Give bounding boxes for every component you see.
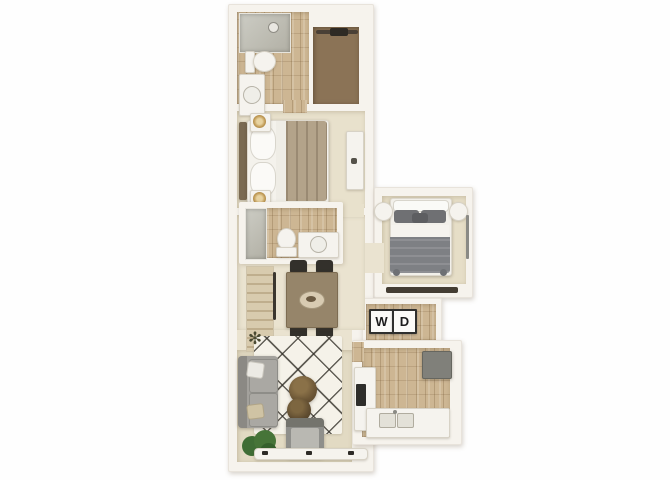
bedroom1-sheet: [276, 121, 286, 201]
closet1-hanging-clothes: [330, 28, 348, 36]
bedroom1-lamp-top: [253, 115, 266, 128]
bathroom2-shower: [245, 208, 267, 260]
bedroom2-duvet-tassel: [393, 269, 400, 276]
doorway-bedroom1: [340, 204, 364, 217]
bathroom1-shower: [239, 13, 291, 53]
bedroom2-nightstand-left: [374, 202, 393, 221]
bathroom2-toilet-tank: [276, 247, 297, 257]
bedroom2-duvet: [390, 237, 450, 273]
plant-twig: ✻: [246, 330, 264, 348]
bedroom2-sheet: [391, 225, 449, 237]
doorway-bedroom2: [365, 243, 384, 273]
window-handle: [306, 451, 312, 455]
sofa-back: [238, 356, 247, 428]
bedroom1-headboard: [239, 122, 247, 200]
bathroom1-toilet-bowl: [253, 51, 276, 72]
bedroom1-duvet: [286, 121, 327, 201]
bedroom2-duvet-tassel: [440, 269, 447, 276]
dryer-unit: D: [392, 309, 417, 334]
bedroom1-dresser-decor: [351, 158, 357, 164]
kitchen-sink-right: [397, 413, 414, 428]
kitchen-cooktop: [356, 384, 366, 406]
kitchen-sink-left: [379, 413, 396, 428]
washer-unit: W: [369, 309, 394, 334]
window-handle: [348, 451, 354, 455]
bathroom1-sink: [243, 86, 261, 104]
doorway-kitchen: [352, 342, 364, 362]
bedroom2-pillow-accent: [412, 213, 428, 223]
dining-centerpiece-bowl: [306, 296, 316, 302]
bathroom2-sink: [310, 236, 327, 253]
window-handle: [262, 451, 268, 455]
sofa-pillow-tan: [246, 403, 265, 420]
shower-head-icon: [268, 22, 279, 33]
floor-plan-image: W D ✻: [0, 0, 670, 480]
stair-handrail: [273, 272, 276, 320]
sofa-pillow-white: [246, 361, 265, 379]
bedroom2-closet-rod: [386, 287, 458, 293]
doorway-bathroom1: [283, 100, 307, 113]
armchair-back: [286, 418, 324, 427]
washer-label: W: [375, 314, 387, 329]
closet1-floor: [313, 27, 359, 104]
bedroom2-window: [466, 215, 469, 259]
dryer-label: D: [400, 314, 409, 329]
kitchen-fridge: [422, 351, 452, 379]
kitchen-faucet: [393, 410, 397, 414]
